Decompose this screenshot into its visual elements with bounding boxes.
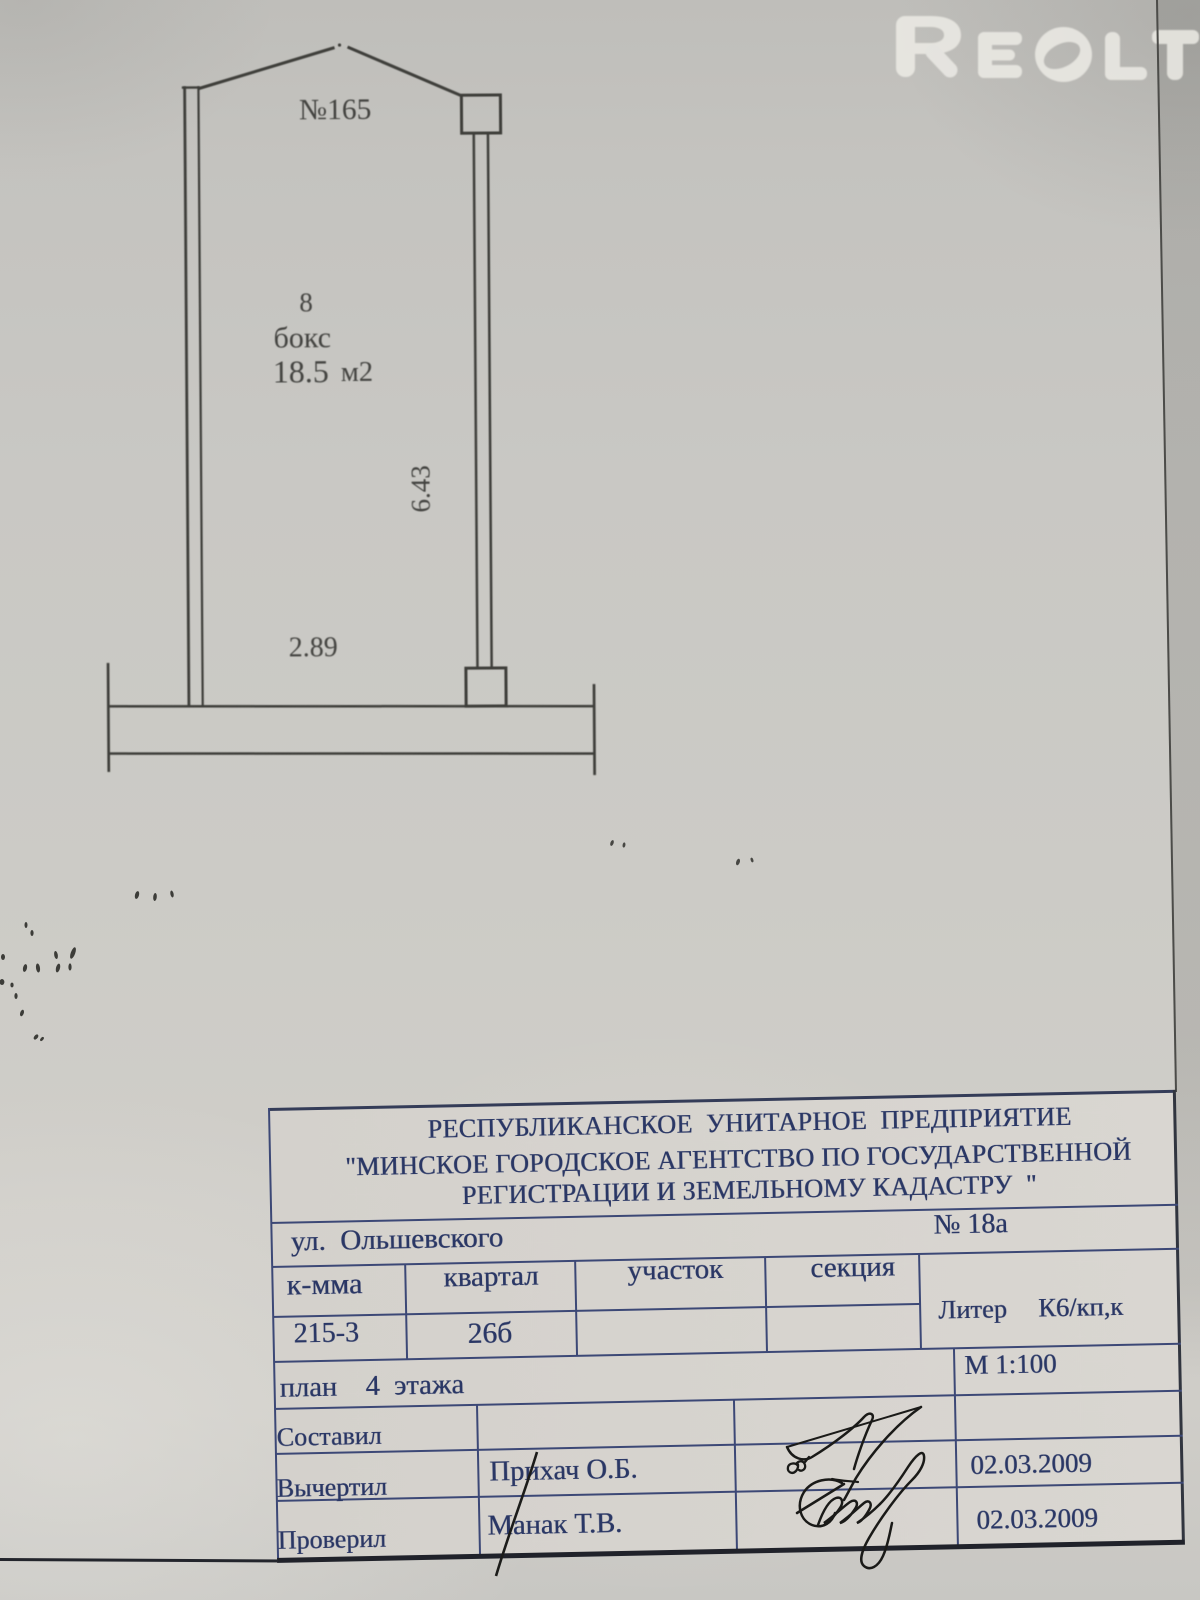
svg-text:бокс: бокс bbox=[273, 321, 331, 354]
svg-text:2.89: 2.89 bbox=[289, 632, 338, 663]
svg-text:№165: №165 bbox=[299, 94, 372, 127]
svg-text:6.43: 6.43 bbox=[405, 465, 435, 512]
svg-text:8: 8 bbox=[299, 287, 313, 317]
svg-text:м2: м2 bbox=[341, 357, 374, 388]
svg-text:18.5: 18.5 bbox=[273, 353, 329, 389]
